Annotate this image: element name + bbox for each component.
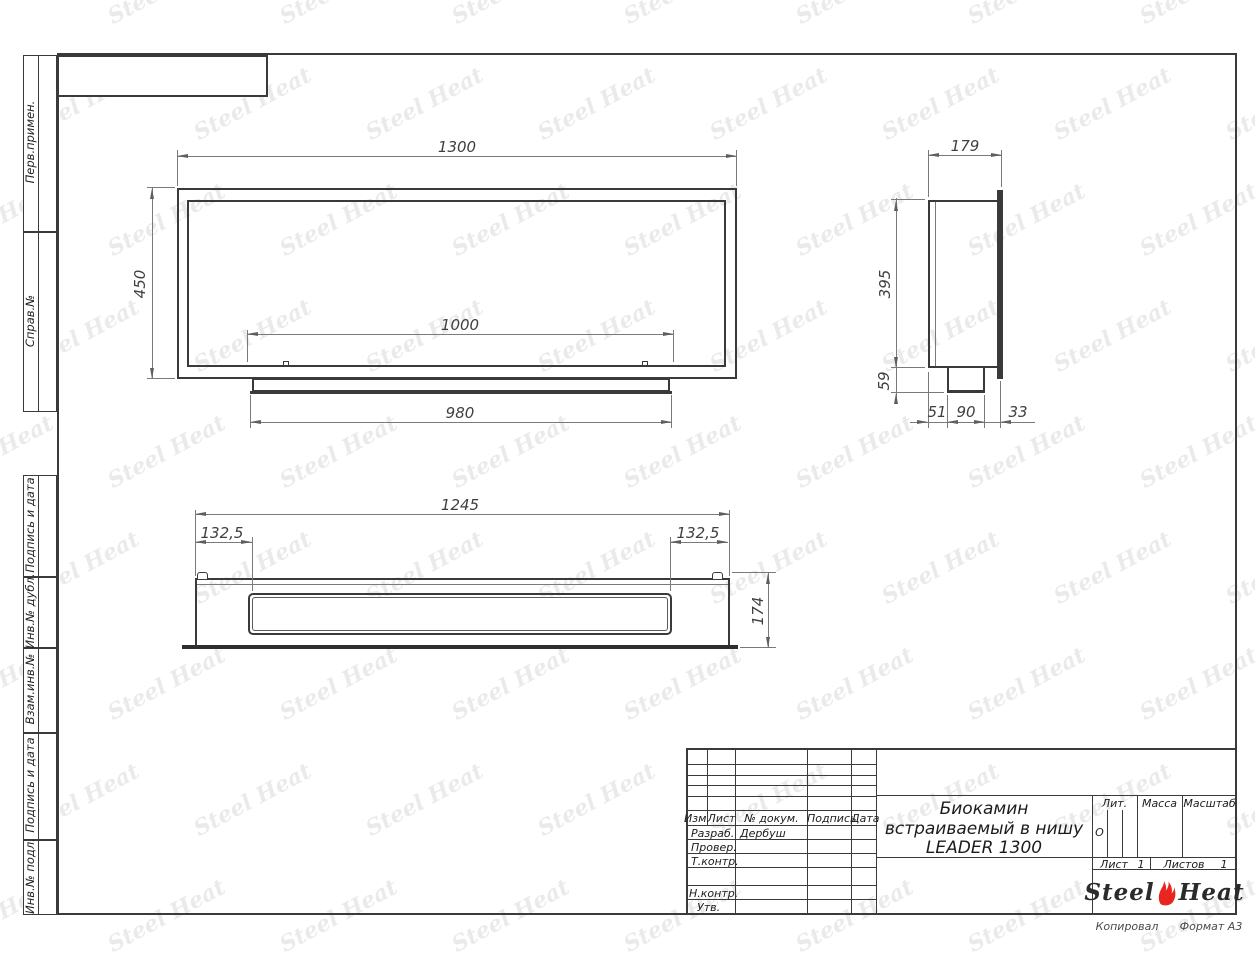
dim-top-inset-left: 132,5 bbox=[192, 524, 252, 542]
tb-lit-label: Лит. bbox=[1092, 797, 1137, 810]
dim-line bbox=[910, 422, 1035, 423]
dim-front-height: 450 bbox=[131, 254, 149, 314]
tb-line bbox=[1122, 810, 1123, 857]
ext-line bbox=[740, 647, 776, 648]
doc-title-line3: LEADER 1300 bbox=[878, 838, 1090, 858]
tb-line bbox=[686, 796, 876, 797]
watermark-tile: Steel Heat bbox=[791, 0, 917, 30]
watermark-tile: Steel Heat bbox=[1135, 0, 1255, 30]
tb-line bbox=[1150, 857, 1151, 869]
ext-line bbox=[252, 537, 253, 591]
side-stamp-label: Перв.примен. bbox=[23, 82, 37, 202]
dim-arrow bbox=[247, 332, 258, 336]
drawing-sheet: Steel HeatSteel HeatSteel HeatSteel Heat… bbox=[0, 0, 1255, 970]
side-view-wall-flange bbox=[997, 190, 1003, 379]
tb-line bbox=[807, 748, 808, 915]
dim-side-depth: 179 bbox=[935, 137, 995, 155]
tb-col-date: Дата bbox=[851, 812, 877, 825]
dim-line bbox=[152, 188, 153, 379]
dim-top-depth: 174 bbox=[749, 581, 767, 641]
designation-repeat-box bbox=[57, 55, 268, 97]
dim-arrow bbox=[177, 154, 188, 158]
side-stamp-label: Инв.№ подл. bbox=[23, 816, 37, 936]
tb-col-signature: Подпись bbox=[807, 812, 852, 825]
top-view-tab-left bbox=[197, 572, 208, 580]
tb-row-label: Разраб. bbox=[691, 827, 734, 840]
dim-arrow bbox=[663, 332, 674, 336]
logo-steel-text: Steel bbox=[1084, 879, 1154, 906]
tb-line bbox=[1107, 810, 1108, 857]
side-stamp-divider bbox=[38, 232, 39, 412]
tb-scale-label: Масштаб bbox=[1182, 797, 1237, 810]
logo-heat-text: Heat bbox=[1179, 879, 1245, 906]
tb-col-izm: Изм. bbox=[684, 812, 708, 825]
watermark-tile: Steel Heat bbox=[619, 0, 745, 30]
side-stamp-divider bbox=[38, 840, 39, 915]
top-view-front-flange bbox=[182, 645, 738, 649]
front-view-base-flange bbox=[250, 391, 672, 394]
tb-col-docnum: № докум. bbox=[735, 812, 808, 825]
ext-line bbox=[891, 392, 944, 393]
dim-arrow bbox=[894, 393, 898, 404]
front-view-opening bbox=[187, 200, 726, 367]
dim-front-base: 980 bbox=[430, 404, 490, 422]
dim-side-seg2: 90 bbox=[946, 403, 986, 421]
tb-row-label: Т.контр. bbox=[691, 855, 739, 868]
dim-arrow bbox=[894, 200, 898, 211]
tb-line bbox=[686, 810, 876, 811]
side-view-base-box bbox=[947, 366, 985, 393]
tb-line bbox=[876, 748, 877, 915]
dim-line bbox=[177, 156, 737, 157]
tb-line bbox=[851, 748, 852, 915]
top-view-glass-line bbox=[197, 584, 728, 585]
dim-line bbox=[195, 514, 729, 515]
watermark-tile: Steel Heat bbox=[447, 0, 573, 30]
watermark-tile: Steel Heat bbox=[963, 0, 1089, 30]
ext-line bbox=[729, 510, 730, 576]
watermark-tile: Steel Heat bbox=[0, 0, 58, 30]
dim-line bbox=[247, 334, 674, 335]
dim-top-inset-right: 132,5 bbox=[668, 524, 728, 542]
tb-row-value: Дербуш bbox=[740, 827, 786, 840]
top-view-tab-right bbox=[712, 572, 723, 580]
doc-title-line1: Биокамин bbox=[878, 799, 1090, 819]
dim-arrow bbox=[661, 420, 672, 424]
top-view-burner-inner bbox=[252, 597, 668, 631]
dim-top-width: 1245 bbox=[430, 496, 490, 514]
side-stamp-divider bbox=[38, 733, 39, 840]
dim-side-height: 395 bbox=[876, 254, 894, 314]
side-stamp-divider bbox=[38, 55, 39, 232]
dim-arrow bbox=[894, 357, 898, 368]
watermark-tile: Steel Heat bbox=[275, 0, 401, 30]
front-view-clip-right bbox=[642, 361, 648, 366]
dim-arrow bbox=[726, 154, 737, 158]
ext-line bbox=[670, 537, 671, 591]
tb-line bbox=[686, 825, 876, 826]
dim-front-width: 1300 bbox=[427, 138, 487, 156]
watermark-tile: Steel Heat bbox=[103, 0, 229, 30]
side-stamp-label: Справ.№ bbox=[23, 261, 37, 381]
ext-line bbox=[928, 150, 929, 197]
copy-label: Копировал bbox=[1087, 920, 1167, 933]
dim-side-seg3: 33 bbox=[998, 403, 1038, 421]
tb-row-label: Провер. bbox=[691, 841, 737, 854]
side-stamp-divider bbox=[38, 577, 39, 648]
format-label: Формат А3 bbox=[1168, 920, 1254, 933]
side-stamp-divider bbox=[38, 475, 39, 577]
dim-arrow bbox=[150, 368, 154, 379]
side-stamp-divider bbox=[38, 648, 39, 733]
steelheat-logo: Steel Heat bbox=[1092, 869, 1237, 915]
side-view-inner-edge bbox=[935, 202, 936, 366]
dim-arrow bbox=[250, 420, 261, 424]
dim-arrow bbox=[150, 188, 154, 199]
dim-arrow bbox=[719, 512, 730, 516]
tb-col-list: Лист bbox=[707, 812, 736, 825]
tb-row-label: Утв. bbox=[697, 901, 720, 914]
dim-front-opening: 1000 bbox=[430, 316, 490, 334]
front-view-clip-left bbox=[283, 361, 289, 366]
side-view-body bbox=[928, 200, 1002, 368]
front-view-base-box bbox=[252, 378, 670, 392]
dim-side-bottom: 59 bbox=[875, 351, 893, 411]
doc-title-line2: встраиваемый в нишу bbox=[878, 819, 1090, 839]
side-view-base-edge bbox=[947, 390, 985, 393]
dim-line bbox=[250, 422, 672, 423]
dim-arrow bbox=[195, 512, 206, 516]
tb-line bbox=[686, 885, 876, 886]
flame-icon bbox=[1157, 878, 1177, 906]
tb-line bbox=[686, 764, 876, 765]
tb-line bbox=[686, 785, 876, 786]
tb-row-label: Н.контр. bbox=[689, 887, 738, 900]
tb-mass-label: Масса bbox=[1137, 797, 1182, 810]
dim-line bbox=[896, 198, 897, 400]
tb-lit-value: О bbox=[1092, 826, 1107, 839]
tb-line bbox=[686, 775, 876, 776]
